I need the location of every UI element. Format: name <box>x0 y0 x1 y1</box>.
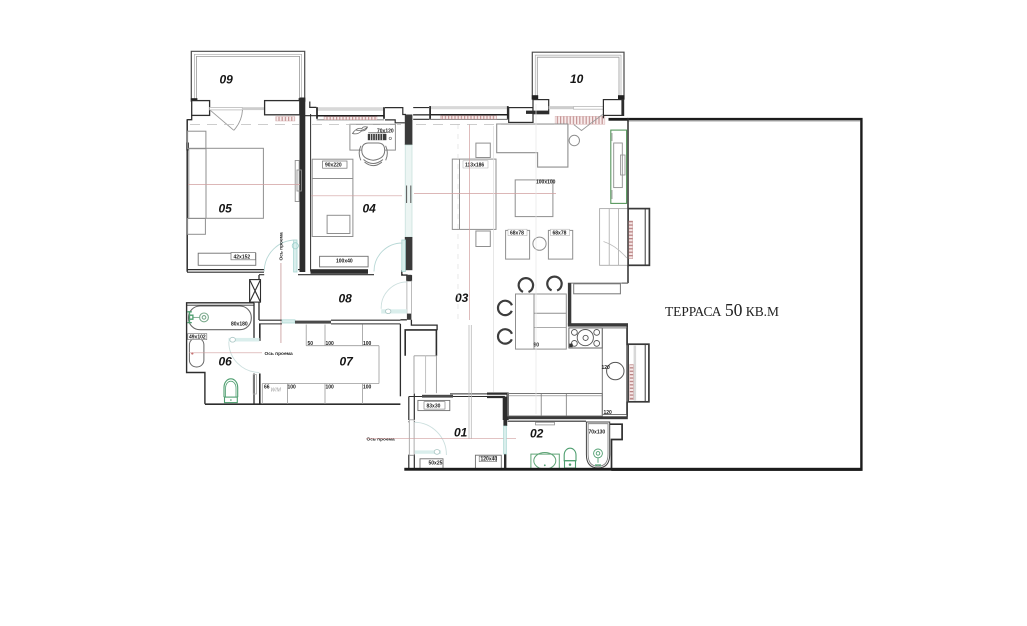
svg-text:100x40: 100x40 <box>336 259 353 265</box>
svg-text:02: 02 <box>530 427 544 441</box>
svg-text:100x100: 100x100 <box>536 179 556 185</box>
svg-text:04: 04 <box>363 202 377 216</box>
svg-text:100: 100 <box>326 385 335 391</box>
svg-text:42x152: 42x152 <box>234 254 251 260</box>
svg-text:09: 09 <box>220 73 234 87</box>
svg-text:50: 50 <box>308 341 314 347</box>
svg-text:01: 01 <box>454 426 468 440</box>
svg-text:120: 120 <box>604 410 613 416</box>
svg-text:66: 66 <box>264 385 270 391</box>
svg-text:100: 100 <box>363 385 372 391</box>
svg-text:03: 03 <box>455 291 469 305</box>
svg-text:70x130: 70x130 <box>589 430 606 436</box>
svg-text:120x40: 120x40 <box>481 457 498 463</box>
svg-text:05: 05 <box>219 202 233 216</box>
svg-text:08: 08 <box>339 292 353 306</box>
svg-text:50x25: 50x25 <box>429 461 443 467</box>
svg-text:49x102: 49x102 <box>189 334 206 340</box>
svg-text:68x78: 68x78 <box>553 230 567 236</box>
svg-text:Ось проема: Ось проема <box>265 351 294 357</box>
svg-text:Ось проема: Ось проема <box>367 437 396 443</box>
svg-text:100: 100 <box>288 385 297 391</box>
svg-text:100: 100 <box>363 341 372 347</box>
svg-text:83x30: 83x30 <box>427 404 441 410</box>
svg-text:70x120: 70x120 <box>377 128 394 134</box>
svg-text:113x186: 113x186 <box>465 163 484 169</box>
svg-text:90: 90 <box>534 343 540 349</box>
svg-text:68x78: 68x78 <box>510 230 524 236</box>
svg-text:120: 120 <box>602 365 611 371</box>
svg-text:10: 10 <box>570 72 584 86</box>
svg-text:100: 100 <box>326 341 335 347</box>
svg-text:80x180: 80x180 <box>231 322 248 328</box>
svg-text:06: 06 <box>219 355 233 369</box>
svg-text:Ось проема: Ось проема <box>279 232 285 261</box>
svg-text:W/M: W/M <box>271 387 282 393</box>
svg-text:07: 07 <box>340 355 355 369</box>
svg-text:90x220: 90x220 <box>325 163 342 169</box>
